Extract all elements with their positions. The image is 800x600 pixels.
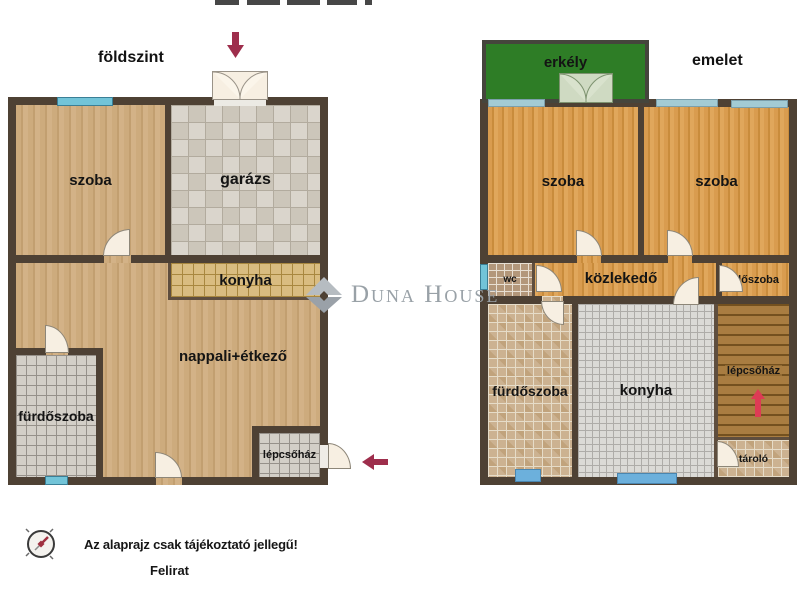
duna-house-logo-icon — [305, 276, 343, 314]
cropped-text-fragment — [247, 0, 280, 5]
door-opening — [320, 445, 328, 468]
window — [731, 100, 788, 108]
window — [617, 473, 677, 484]
wall — [488, 296, 789, 304]
entrance-arrow-down-icon — [227, 32, 244, 58]
compass-icon — [21, 524, 61, 564]
stairs-arrow-up-icon — [751, 389, 765, 417]
door-opening — [668, 255, 692, 263]
wall — [572, 304, 578, 477]
entrance-arrow-left-icon — [362, 454, 388, 470]
room-nappali-etkezo — [16, 263, 320, 477]
room-kozlekedo — [488, 263, 789, 296]
window — [656, 99, 718, 107]
window — [45, 476, 68, 485]
ground-floor-title: földszint — [98, 49, 164, 67]
door-opening — [104, 255, 131, 263]
window — [515, 469, 541, 482]
garage-double-door — [212, 71, 268, 100]
cropped-text-fragment — [365, 0, 372, 5]
door-opening — [577, 255, 601, 263]
watermark: Duna House — [305, 276, 499, 314]
entrance-door-arc — [328, 443, 351, 469]
cropped-text-fragment — [287, 0, 320, 5]
disclaimer-text: Az alaprajz csak tájékoztató jellegű! — [84, 537, 298, 552]
balcony-double-door — [559, 73, 613, 103]
room-label: erkély — [486, 44, 645, 71]
window — [488, 99, 545, 107]
floor-plan-canvas: földszint szoba garázs nappali+étkező ko… — [0, 0, 800, 600]
window — [57, 97, 113, 106]
wall — [718, 437, 789, 440]
upper-floor-title: emelet — [692, 52, 743, 70]
door-opening — [156, 477, 182, 485]
cropped-text-fragment — [215, 0, 239, 5]
cropped-text-fragment — [327, 0, 357, 5]
watermark-text: Duna House — [351, 281, 499, 309]
caption-text: Felirat — [150, 563, 189, 578]
